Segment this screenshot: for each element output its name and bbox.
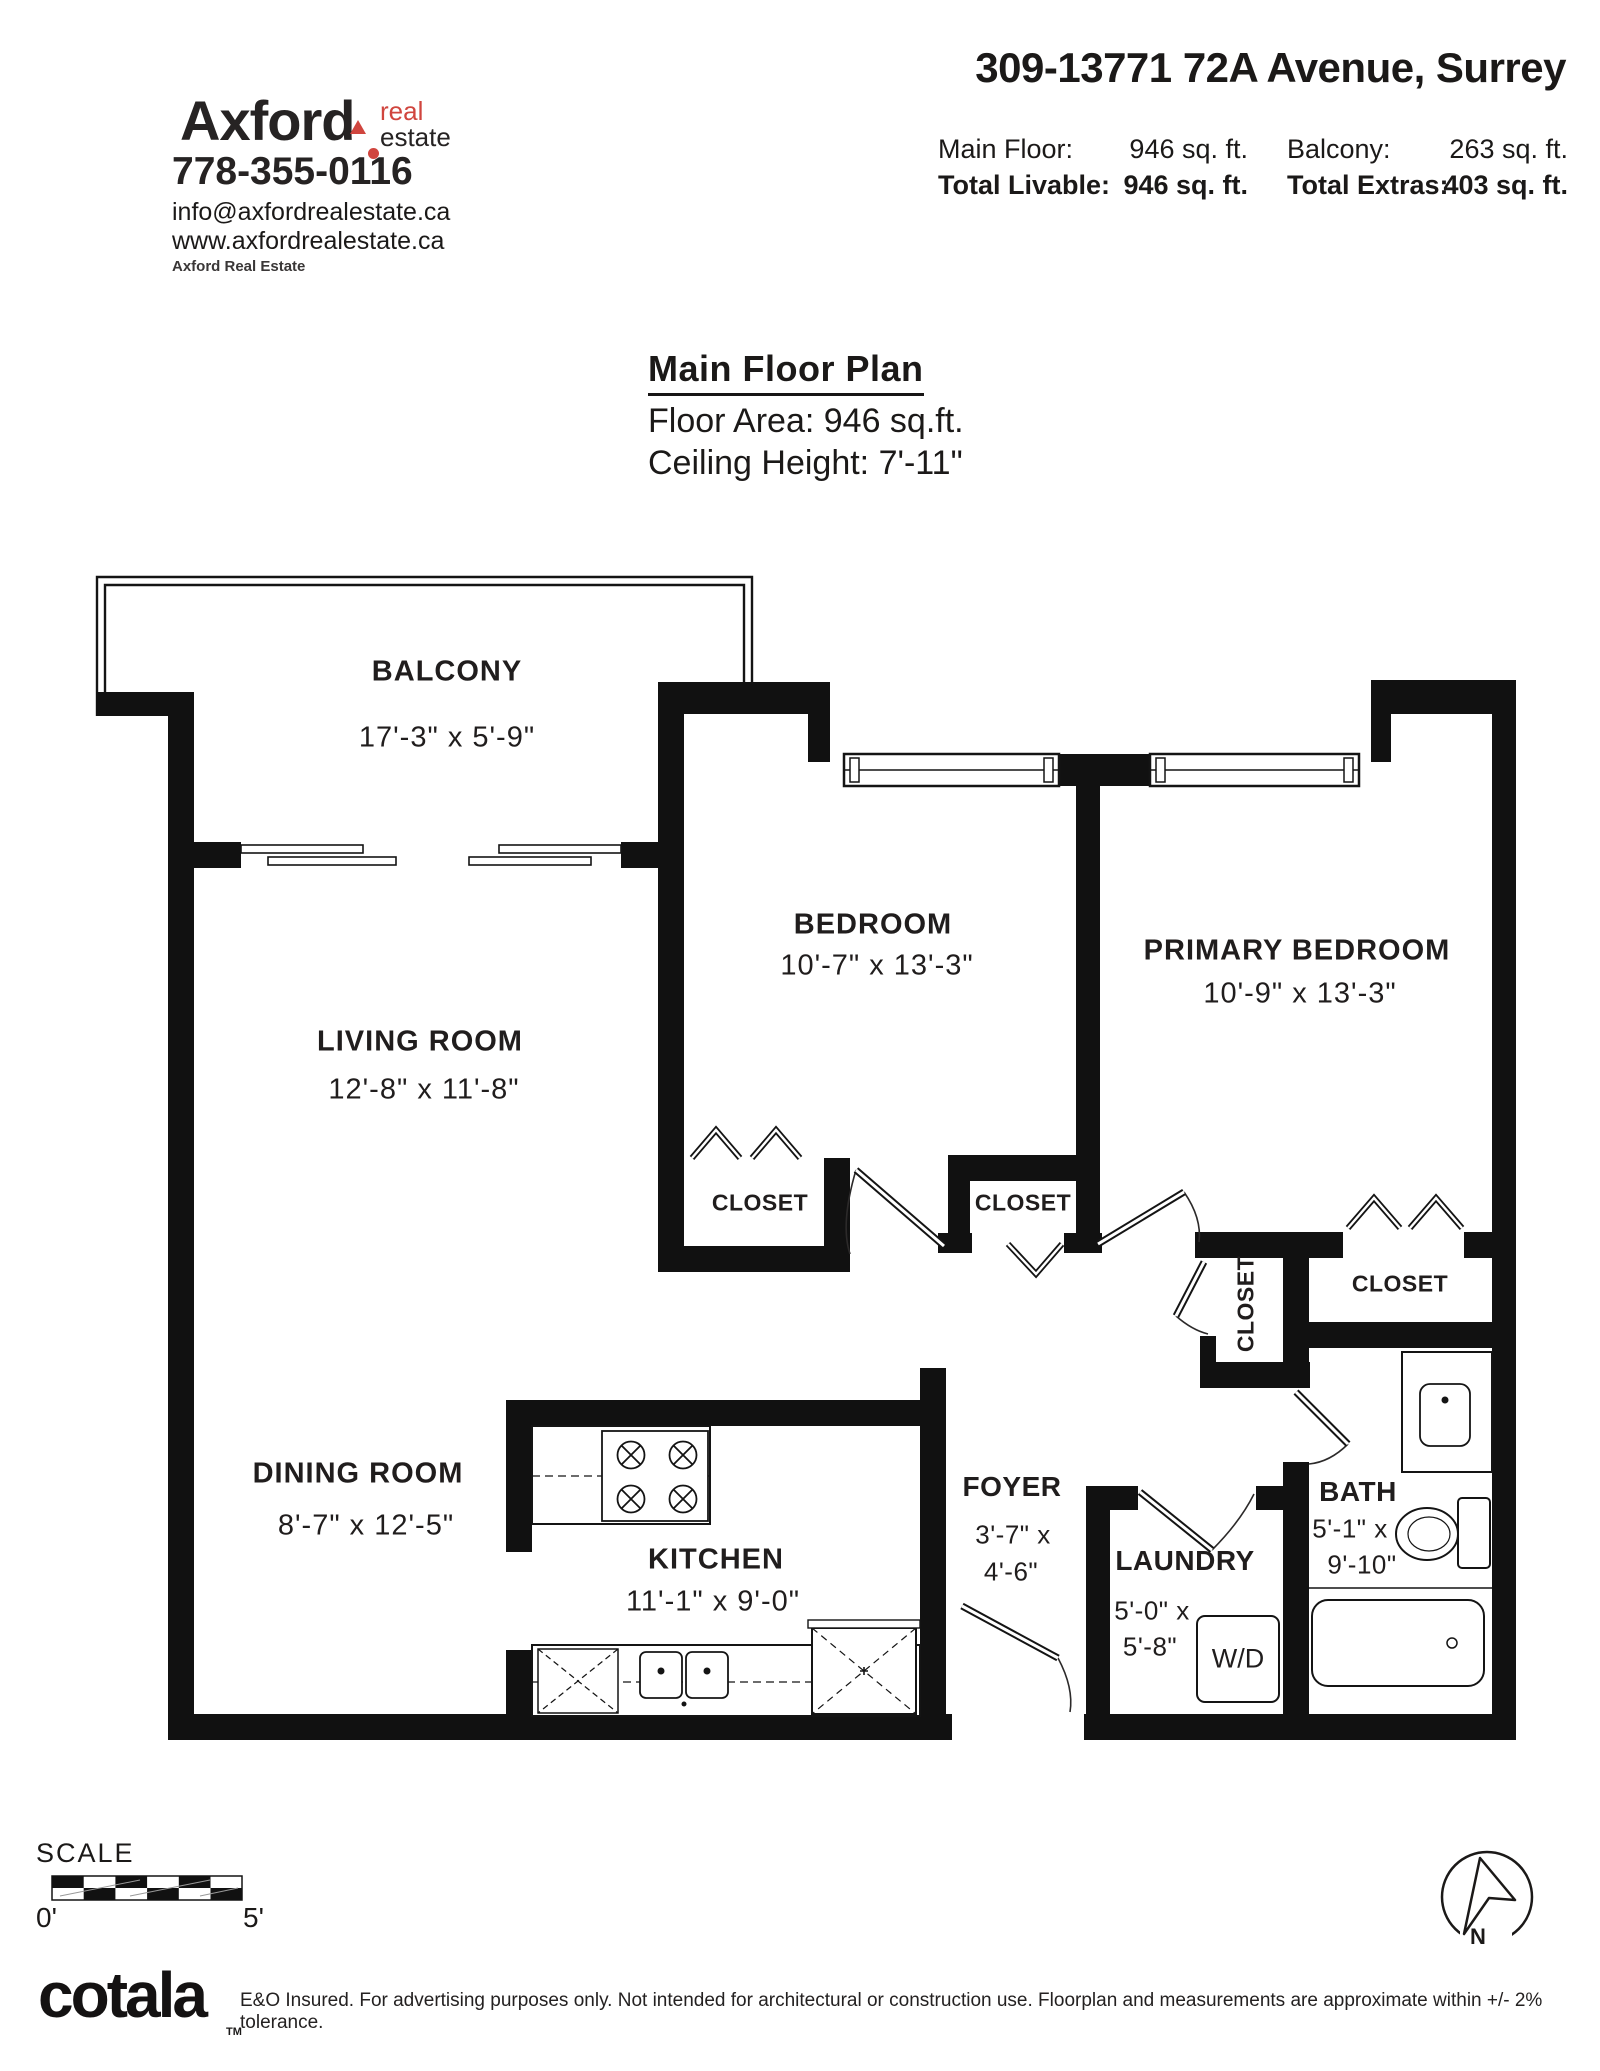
- room-dims-primary: 10'-9" x 13'-3": [1203, 978, 1396, 1011]
- room-label-bath: BATH: [1319, 1476, 1397, 1508]
- floorplan-page: { "header": { "brand": { "name": "Axford…: [0, 0, 1600, 2071]
- bathtub-icon: [1312, 1600, 1484, 1686]
- stat-main-floor-value: 946 sq. ft.: [1098, 134, 1248, 165]
- plan-floor-area: Floor Area: 946 sq.ft.: [648, 402, 964, 441]
- closet-label-1: CLOSET: [712, 1190, 808, 1217]
- room-label-living: LIVING ROOM: [317, 1026, 523, 1059]
- footer-brand: cotala: [38, 1958, 205, 2032]
- footer-disclaimer: E&O Insured. For advertising purposes on…: [240, 1990, 1600, 2034]
- fridge-icon: [808, 1620, 920, 1714]
- sliding-door-icon: [241, 845, 621, 865]
- plan-title: Main Floor Plan: [648, 348, 924, 396]
- washer-dryer-label: W/D: [1212, 1644, 1264, 1675]
- toilet-icon: [1396, 1498, 1490, 1568]
- plan-ceiling-height: Ceiling Height: 7'-11": [648, 444, 963, 483]
- scale-label: SCALE: [36, 1838, 135, 1869]
- compass-north-label: N: [1463, 1924, 1493, 1950]
- listing-address: 309-13771 72A Avenue, Surrey: [975, 44, 1566, 92]
- stat-total-livable-label: Total Livable:: [938, 170, 1110, 201]
- stat-balcony-label: Balcony:: [1287, 134, 1391, 165]
- stat-total-livable-value: 946 sq. ft.: [1098, 170, 1248, 201]
- room-dims-laundry-2: 5'-8": [1123, 1632, 1177, 1663]
- brand-phone: 778-355-0116: [172, 150, 413, 194]
- room-dims-bath-2: 9'-10": [1327, 1550, 1396, 1581]
- closet-label-2: CLOSET: [975, 1190, 1071, 1217]
- scale-bar: [52, 1876, 242, 1900]
- room-label-kitchen: KITCHEN: [648, 1544, 784, 1577]
- balcony-rails: [97, 577, 752, 716]
- brand-tagline-2: estate: [380, 122, 451, 153]
- room-dims-laundry-1: 5'-0" x: [1114, 1596, 1190, 1627]
- red-triangle-icon: [350, 120, 366, 134]
- brand-logo: Axford: [180, 88, 354, 153]
- stat-balcony-value: 263 sq. ft.: [1418, 134, 1568, 165]
- closet-label-3: CLOSET: [1233, 1256, 1260, 1352]
- room-dims-foyer-2: 4'-6": [984, 1557, 1038, 1588]
- brand-name: Axford: [180, 89, 354, 152]
- room-dims-kitchen: 11'-1" x 9'-0": [626, 1586, 800, 1619]
- room-label-balcony: BALCONY: [372, 656, 522, 689]
- stat-main-floor-label: Main Floor:: [938, 134, 1073, 165]
- scale-start: 0': [36, 1902, 57, 1934]
- room-label-primary: PRIMARY BEDROOM: [1144, 935, 1451, 968]
- scale-end: 5': [243, 1902, 264, 1934]
- room-label-foyer: FOYER: [963, 1471, 1062, 1503]
- room-dims-balcony: 17'-3" x 5'-9": [359, 722, 535, 755]
- closet-label-4: CLOSET: [1352, 1271, 1448, 1298]
- floorplan-drawing: [0, 0, 1600, 2071]
- room-label-dining: DINING ROOM: [253, 1458, 464, 1491]
- room-dims-bath-1: 5'-1" x: [1312, 1514, 1388, 1545]
- brand-company: Axford Real Estate: [172, 258, 305, 275]
- room-dims-bedroom: 10'-7" x 13'-3": [780, 950, 973, 983]
- brand-website[interactable]: www.axfordrealestate.ca: [172, 227, 444, 256]
- brand-email[interactable]: info@axfordrealestate.ca: [172, 198, 450, 227]
- room-label-laundry: LAUNDRY: [1115, 1545, 1254, 1577]
- room-dims-dining: 8'-7" x 12'-5": [278, 1510, 454, 1543]
- room-label-bedroom: BEDROOM: [794, 909, 952, 942]
- room-dims-living: 12'-8" x 11'-8": [328, 1074, 519, 1107]
- vanity-sink-icon: [1402, 1352, 1492, 1472]
- room-dims-foyer-1: 3'-7" x: [975, 1520, 1051, 1551]
- stat-total-extras-value: 403 sq. ft.: [1418, 170, 1568, 201]
